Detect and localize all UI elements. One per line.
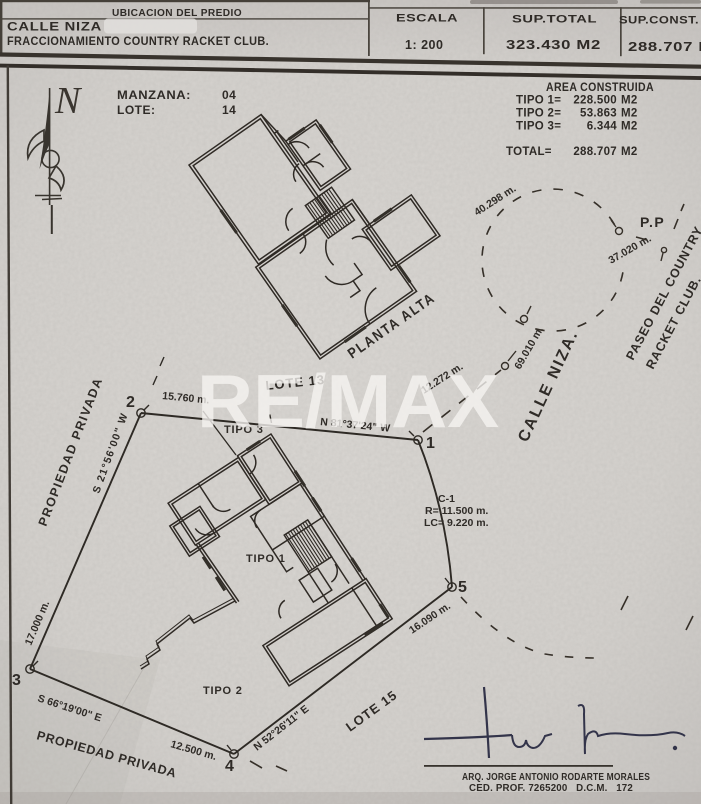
svg-text:LOTE:: LOTE: [117, 103, 156, 117]
svg-text:M2: M2 [621, 146, 638, 158]
svg-text:3: 3 [12, 672, 21, 689]
svg-text:1: 200: 1: 200 [405, 38, 443, 52]
svg-text:2: 2 [126, 394, 135, 411]
svg-text:LC= 9.220 m.: LC= 9.220 m. [424, 517, 489, 529]
svg-text:ESCALA: ESCALA [396, 13, 458, 25]
svg-text:TIPO 1=: TIPO 1= [516, 95, 561, 107]
svg-text:M2: M2 [621, 121, 638, 133]
svg-text:P.P: P.P [640, 214, 665, 230]
svg-text:MANZANA:: MANZANA: [117, 88, 191, 102]
svg-text:CED. PROF. 7265200 D.C.M.: CED. PROF. 7265200 D.C.M. 172 [469, 783, 633, 794]
svg-text:FRACCIONAMIENTO COUNTRY RACKET: FRACCIONAMIENTO COUNTRY RACKET CLUB. [7, 34, 269, 48]
svg-text:6.344: 6.344 [587, 121, 618, 133]
svg-text:R= 11.500 m.: R= 11.500 m. [425, 505, 488, 517]
svg-text:RE/MAX: RE/MAX [197, 359, 499, 443]
svg-text:SUP.CONST.: SUP.CONST. [619, 15, 699, 27]
svg-text:TIPO 3=: TIPO 3= [516, 121, 561, 133]
svg-text:TIPO 2=: TIPO 2= [516, 108, 561, 120]
svg-text:M2: M2 [621, 95, 638, 107]
svg-text:4: 4 [225, 758, 234, 775]
svg-text:N: N [54, 80, 83, 122]
svg-text:ARQ. JORGE ANTONIO RODARTE MOR: ARQ. JORGE ANTONIO RODARTE MORALES [462, 772, 650, 783]
svg-text:5: 5 [458, 579, 467, 596]
svg-text:CALLE NIZA: CALLE NIZA [7, 20, 102, 34]
svg-text:C-1: C-1 [438, 493, 455, 505]
svg-text:14: 14 [222, 103, 236, 117]
svg-text:288.707 M2: 288.707 M2 [628, 40, 701, 54]
svg-text:SUP.TOTAL: SUP.TOTAL [512, 14, 597, 26]
svg-text:TOTAL=: TOTAL= [506, 146, 552, 158]
svg-text:M2: M2 [621, 108, 638, 120]
svg-text:AREA CONSTRUIDA: AREA CONSTRUIDA [546, 82, 654, 94]
svg-text:UBICACION DEL PREDIO: UBICACION DEL PREDIO [112, 8, 242, 19]
svg-text:53.863: 53.863 [580, 108, 617, 120]
svg-text:TIPO 1: TIPO 1 [246, 553, 286, 565]
svg-text:323.430 M2: 323.430 M2 [506, 38, 601, 52]
svg-text:TIPO 2: TIPO 2 [203, 685, 243, 697]
svg-text:288.707: 288.707 [573, 146, 617, 158]
svg-text:04: 04 [222, 88, 236, 102]
svg-text:228.500: 228.500 [573, 95, 617, 107]
